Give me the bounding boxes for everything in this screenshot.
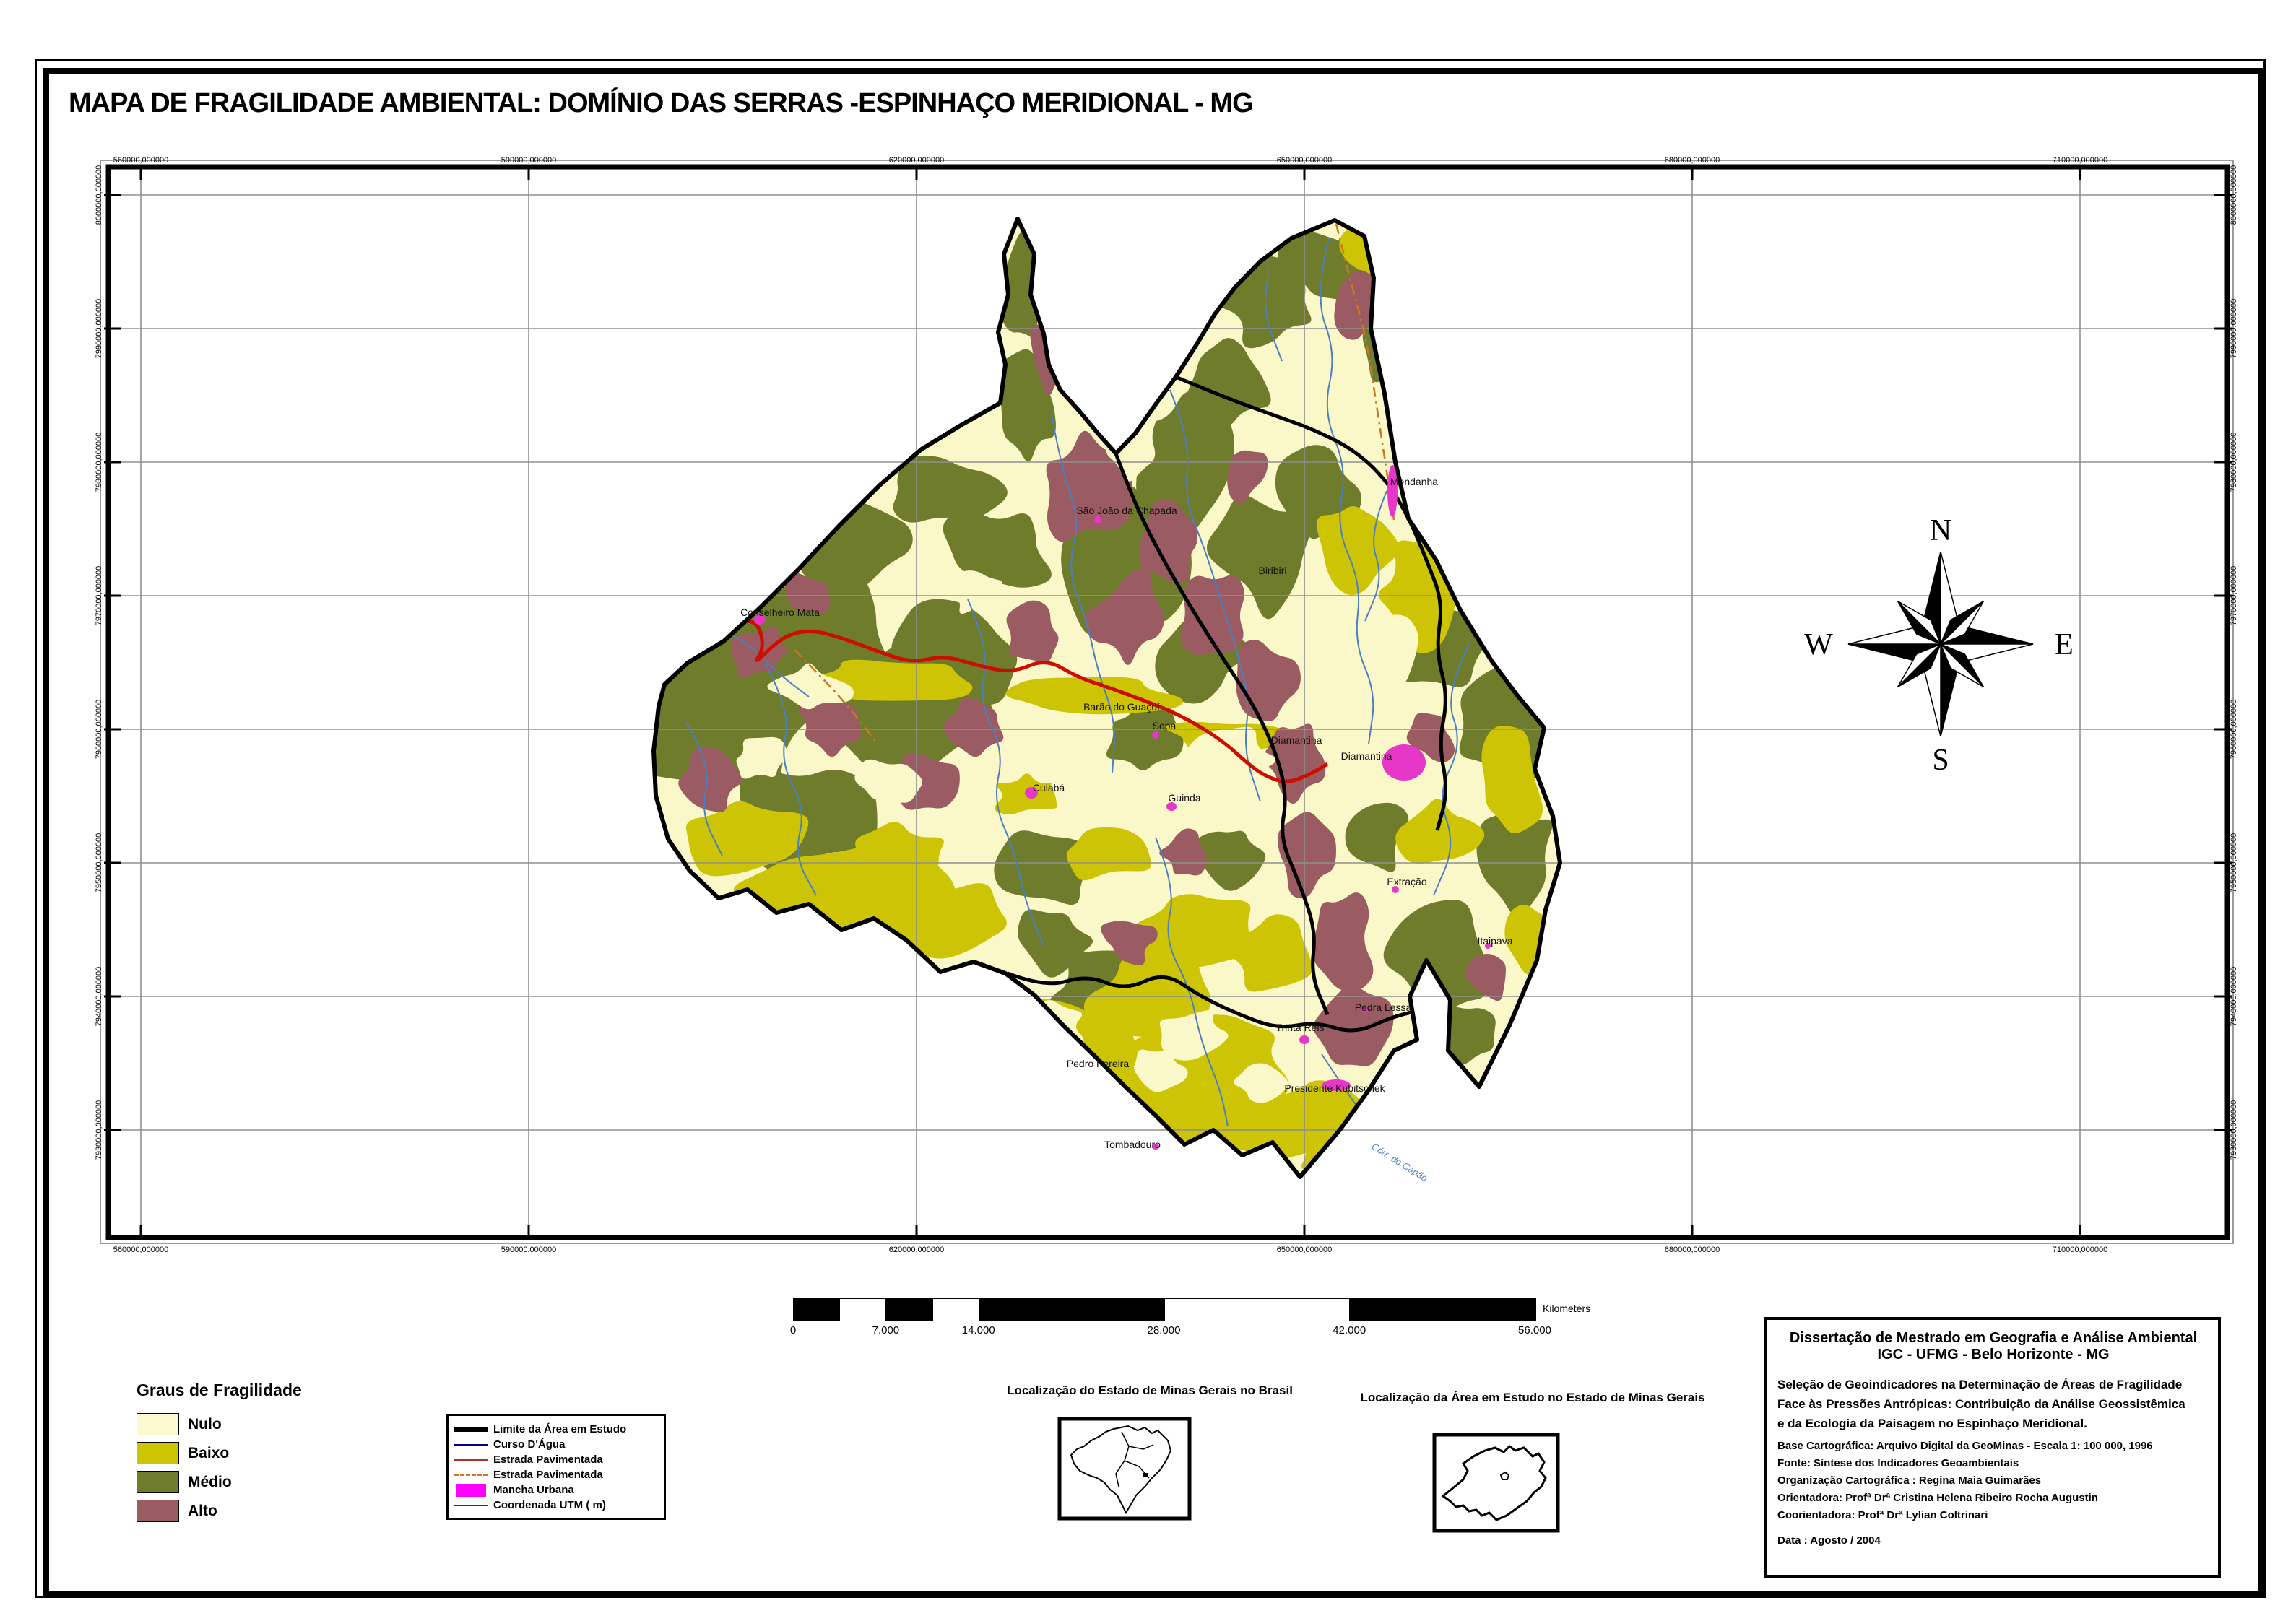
town-label: Tombadouro: [1104, 1139, 1161, 1150]
credits-detail-line: Fonte: Síntese dos Indicadores Geoambien…: [1777, 1455, 2209, 1472]
legend-item-baixo: Baixo: [137, 1442, 302, 1464]
easting-label: 710000,000000: [2053, 1246, 2107, 1254]
easting-label: 620000,000000: [889, 156, 944, 165]
scale-tick-label: 7.000: [872, 1324, 900, 1337]
scale-bar-segment: [979, 1299, 1165, 1321]
credits-date: Data : Agosto / 2004: [1777, 1534, 2209, 1547]
patch-nulo: [1393, 373, 1473, 487]
town-label: Extração: [1387, 876, 1426, 887]
northing-label: 7930000,000000: [2230, 1100, 2238, 1160]
easting-label: 560000,000000: [113, 156, 168, 165]
town-label: Sopa: [1153, 720, 1177, 731]
credits-detail-line: Coorientadora: Profª Drª Lylian Coltrina…: [1777, 1507, 2209, 1524]
easting-label: 710000,000000: [2053, 156, 2107, 165]
patch-baixo: [1432, 468, 1491, 552]
legend-item-estrada-nao-pav: Estrada Pavimentada: [454, 1467, 659, 1482]
northing-label: 7940000,000000: [2230, 967, 2238, 1027]
easting-label: 590000,000000: [501, 1246, 556, 1254]
scale-bar-segment: [886, 1299, 932, 1321]
northing-label: 7990000,000000: [2230, 299, 2238, 359]
town-label: Mendanha: [1390, 476, 1438, 487]
alto-swatch: [137, 1500, 179, 1522]
town-label: Conselheiro Mata: [740, 607, 820, 618]
scale-tick-label: 56.000: [1518, 1324, 1551, 1337]
northing-label: 7970000,000000: [2230, 566, 2238, 626]
northing-label: 7980000,000000: [95, 433, 103, 492]
easting-label: 590000,000000: [501, 156, 556, 165]
credits-detail-line: Organização Cartográfica : Regina Maia G…: [1777, 1472, 2209, 1490]
patch-medio: [1088, 297, 1139, 385]
northing-label: 7970000,000000: [95, 566, 103, 626]
scale-tick-label: 42.000: [1333, 1324, 1366, 1337]
credits-box: Dissertação de Mestrado em Geografia e A…: [1764, 1317, 2221, 1578]
northing-label: 8000000,000000: [95, 165, 103, 225]
northing-label: 7940000,000000: [95, 967, 103, 1027]
legend-item-limite: Limite da Área em Estudo: [454, 1422, 659, 1437]
northing-label: 7990000,000000: [95, 299, 103, 359]
northing-label: 7930000,000000: [95, 1100, 103, 1160]
urban-patch: [1387, 465, 1398, 517]
town-label: São João da Chapada: [1076, 505, 1177, 516]
easting-label: 620000,000000: [889, 1246, 944, 1254]
northing-label: 7960000,000000: [95, 700, 103, 760]
compass-south-label: S: [1932, 744, 1949, 777]
credits-abstract-line: e da Ecologia da Paisagem no Espinhaço M…: [1777, 1414, 2209, 1433]
scale-bar-segment: [933, 1299, 979, 1321]
easting-label: 650000,000000: [1277, 156, 1332, 165]
map-sheet: MAPA DE FRAGILIDADE AMBIENTAL: DOMÍNIO D…: [0, 0, 2296, 1621]
urban-patch: [1152, 731, 1159, 739]
urban-patch: [1094, 516, 1101, 523]
mg-locator-label: Localização da Área em Estudo no Estado …: [1360, 1391, 1704, 1405]
utm-line-icon: [454, 1505, 488, 1506]
line-symbols-legend: Limite da Área em Estudo Curso D'Água Es…: [446, 1414, 666, 1520]
baixo-swatch: [137, 1442, 179, 1464]
patch-nulo: [1457, 544, 1515, 610]
urban-patch: [1299, 1035, 1309, 1044]
legend-item-mancha-urbana: Mancha Urbana: [454, 1482, 659, 1498]
fragility-legend-title: Graus de Fragilidade: [137, 1381, 302, 1400]
compass-north-label: N: [1930, 514, 1951, 547]
scale-bar-segment: [840, 1299, 886, 1321]
credits-abstract-line: Seleção de Geoindicadores na Determinaçã…: [1777, 1375, 2209, 1394]
compass-rose: N S E W: [1804, 514, 2074, 777]
northing-label: 7950000,000000: [2230, 833, 2238, 893]
legend-item-estrada-pav: Estrada Pavimentada: [454, 1452, 659, 1467]
compass-west-label: W: [1804, 628, 1833, 661]
easting-label: 560000,000000: [113, 1246, 168, 1254]
river-label: Córr. do Capão: [1369, 1141, 1429, 1184]
scale-bar: [793, 1298, 1536, 1321]
scale-tick-label: 0: [790, 1324, 796, 1337]
nulo-swatch: [137, 1413, 179, 1435]
northing-label: 7960000,000000: [2230, 700, 2238, 760]
fragility-legend: Graus de Fragilidade Nulo Baixo Médio Al…: [137, 1381, 302, 1529]
northing-label: 7980000,000000: [2230, 433, 2238, 492]
scale-tick-label: 14.000: [962, 1324, 995, 1337]
town-label: Pedro Pereira: [1067, 1058, 1130, 1069]
unpaved-road-icon: [454, 1474, 488, 1476]
credits-title: Dissertação de Mestrado em Geografia e A…: [1777, 1330, 2209, 1347]
credits-detail-line: Base Cartográfica: Arquivo Digital da Ge…: [1777, 1438, 2209, 1455]
legend-item-nulo: Nulo: [137, 1413, 302, 1435]
legend-item-coordenada: Coordenada UTM ( m): [454, 1498, 659, 1513]
scale-bar-segment: [1165, 1299, 1351, 1321]
town-label: Cuiabá: [1033, 782, 1065, 794]
mg-locator-map: [1434, 1435, 1558, 1531]
legend-item-alto: Alto: [137, 1500, 302, 1522]
credits-detail-line: Orientadora: Profª Drª Cristina Helena R…: [1777, 1490, 2209, 1507]
easting-label: 680000,000000: [1665, 1246, 1720, 1254]
town-label: Guinda: [1168, 792, 1200, 804]
medio-swatch: [137, 1471, 179, 1493]
town-label: Itaipava: [1477, 935, 1512, 947]
easting-label: 680000,000000: [1665, 156, 1720, 165]
town-label: Diamantina: [1341, 750, 1392, 762]
paved-road-icon: [454, 1459, 488, 1461]
northing-label: 8000000,000000: [2230, 165, 2238, 225]
town-label: Trinta Réis: [1275, 1022, 1324, 1033]
scale-bar-ticks: 07.00014.00028.00042.00056.000: [793, 1324, 1535, 1342]
easting-label: 650000,000000: [1277, 1246, 1332, 1254]
town-label: Barão do Guaçuí: [1083, 701, 1160, 713]
brasil-locator-map: [1060, 1419, 1190, 1518]
credits-institution: IGC - UFMG - Belo Horizonte - MG: [1777, 1347, 2209, 1363]
scale-bar-segment: [1350, 1299, 1535, 1321]
credits-abstract-line: Face às Pressões Antrópicas: Contribuiçã…: [1777, 1394, 2209, 1414]
legend-item-curso: Curso D'Água: [454, 1437, 659, 1452]
scale-tick-label: 28.000: [1148, 1324, 1181, 1337]
compass-east-label: E: [2055, 628, 2074, 661]
legend-item-medio: Médio: [137, 1471, 302, 1493]
town-label: Presidente Kubitschek: [1284, 1082, 1385, 1094]
urban-swatch-icon: [454, 1484, 488, 1497]
river-line-icon: [454, 1444, 488, 1446]
town-label: Pedra Lessa: [1355, 1001, 1412, 1013]
brasil-locator-label: Localização do Estado de Minas Gerais no…: [1007, 1383, 1293, 1398]
mg-marker: [1143, 1473, 1148, 1477]
town-label: Biribiri: [1259, 565, 1287, 576]
northing-label: 7950000,000000: [95, 833, 103, 893]
scale-bar-unit: Kilometers: [1543, 1303, 1590, 1314]
limit-line-icon: [454, 1427, 488, 1432]
town-label: Diamantina: [1271, 734, 1322, 746]
scale-bar-segment: [794, 1299, 840, 1321]
